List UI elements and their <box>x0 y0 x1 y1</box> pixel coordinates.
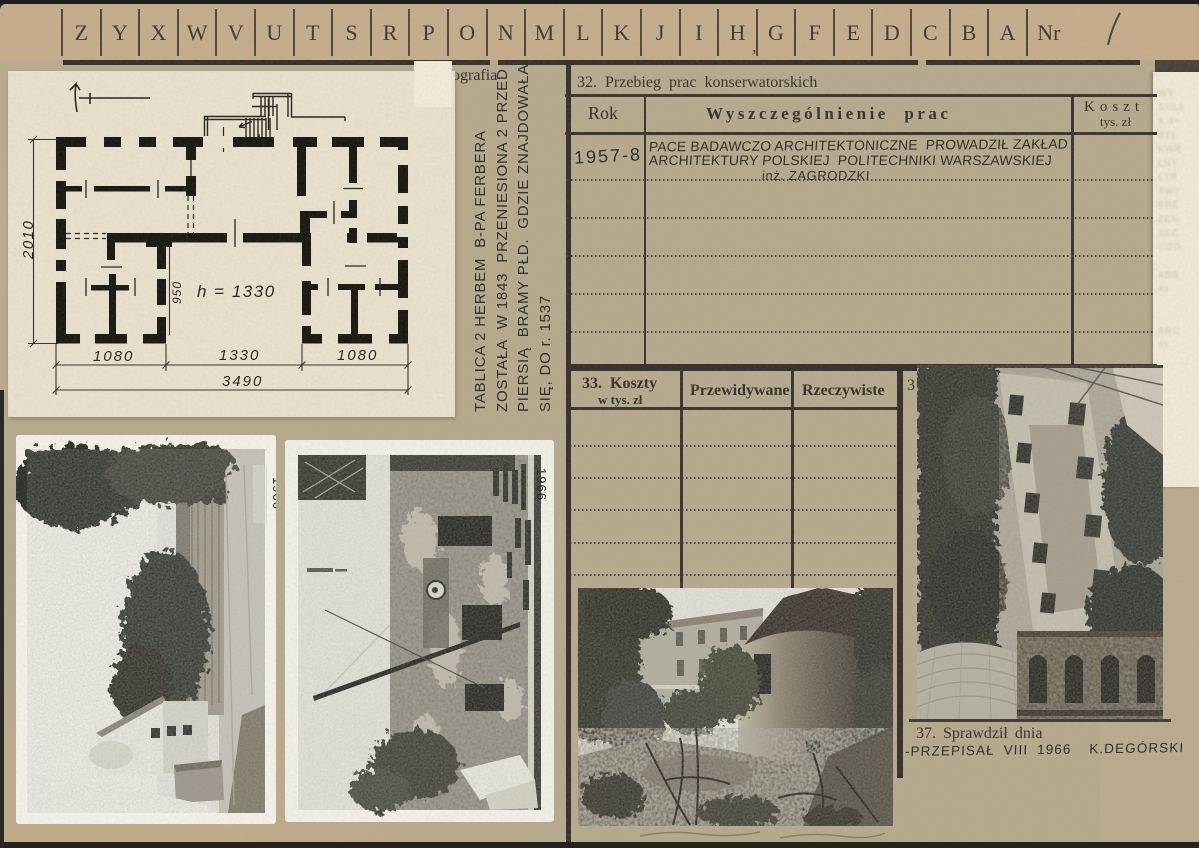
svg-text:1080: 1080 <box>337 347 378 364</box>
svg-text:3490: 3490 <box>222 373 263 390</box>
svg-text:1330: 1330 <box>219 347 260 364</box>
svg-text:h = 1330: h = 1330 <box>197 282 276 301</box>
svg-text:2010: 2010 <box>20 220 37 260</box>
svg-text:1080: 1080 <box>93 348 134 365</box>
svg-text:1966: 1966 <box>534 468 549 501</box>
svg-text:950: 950 <box>170 281 184 304</box>
svg-text:1966: 1966 <box>270 477 276 510</box>
